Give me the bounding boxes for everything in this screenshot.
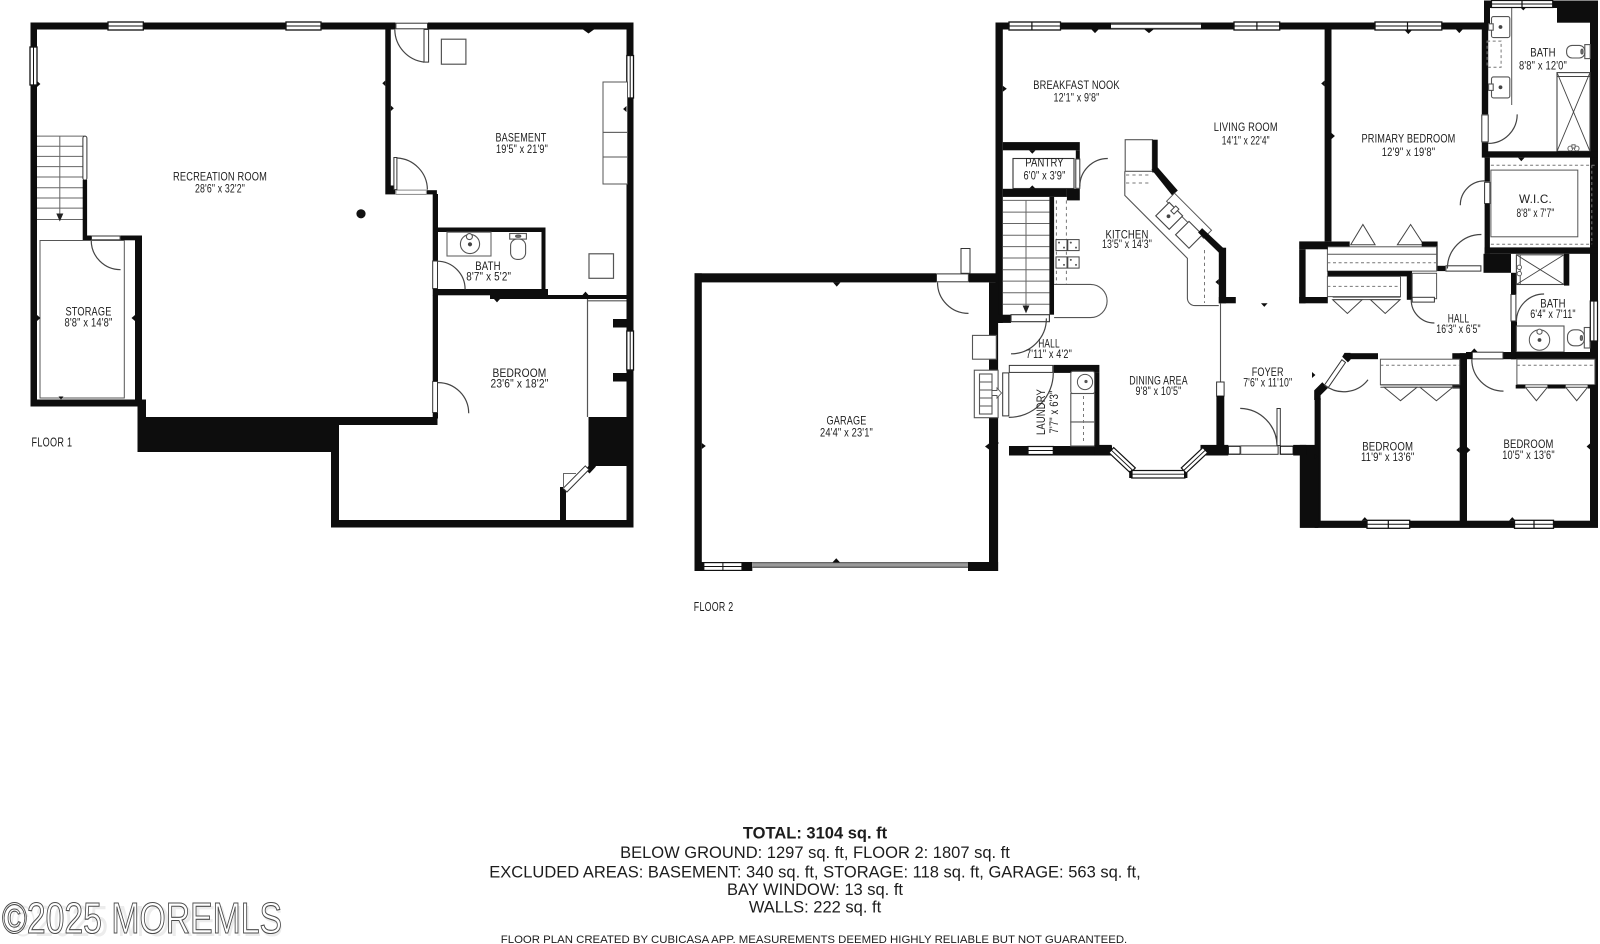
- svg-text:EXCLUDED AREAS: BASEMENT: 340: EXCLUDED AREAS: BASEMENT: 340 sq. ft, ST…: [489, 864, 1140, 882]
- svg-text:FLOOR 2: FLOOR 2: [694, 599, 734, 614]
- svg-text:BELOW GROUND: 1297 sq. ft, FLO: BELOW GROUND: 1297 sq. ft, FLOOR 2: 1807…: [620, 844, 1010, 862]
- svg-text:8'7" x 5'2": 8'7" x 5'2": [466, 270, 511, 283]
- svg-text:FLOOR 1: FLOOR 1: [32, 434, 73, 449]
- svg-text:BATH: BATH: [1530, 47, 1556, 60]
- svg-text:14'1" x 22'4": 14'1" x 22'4": [1222, 135, 1270, 148]
- svg-text:WALLS: 222 sq. ft: WALLS: 222 sq. ft: [749, 899, 882, 917]
- svg-text:7'7" x 6'3": 7'7" x 6'3": [1048, 391, 1061, 434]
- svg-text:6'0" x 3'9": 6'0" x 3'9": [1024, 169, 1066, 182]
- svg-text:LIVING ROOM: LIVING ROOM: [1214, 121, 1278, 134]
- svg-text:LAUNDRY: LAUNDRY: [1035, 389, 1048, 435]
- svg-text:19'5" x 21'9": 19'5" x 21'9": [496, 143, 548, 156]
- svg-text:9'8" x 10'5": 9'8" x 10'5": [1136, 385, 1182, 398]
- svg-text:24'4" x 23'1": 24'4" x 23'1": [820, 426, 873, 439]
- svg-text:BREAKFAST NOOK: BREAKFAST NOOK: [1033, 79, 1120, 92]
- svg-text:12'1" x 9'8": 12'1" x 9'8": [1054, 92, 1100, 105]
- svg-text:FLOOR PLAN CREATED BY CUBICASA: FLOOR PLAN CREATED BY CUBICASA APP. MEAS…: [501, 934, 1127, 944]
- svg-text:11'9" x 13'6": 11'9" x 13'6": [1361, 451, 1415, 464]
- svg-text:7'6" x 11'10": 7'6" x 11'10": [1243, 377, 1292, 390]
- svg-text:W.I.C.: W.I.C.: [1519, 193, 1552, 206]
- svg-text:TOTAL: 3104 sq. ft: TOTAL: 3104 sq. ft: [743, 825, 888, 843]
- svg-text:8'8" x 14'8": 8'8" x 14'8": [65, 317, 113, 330]
- svg-text:12'9" x 19'8": 12'9" x 19'8": [1382, 146, 1436, 159]
- svg-text:©2025 MOREMLS: ©2025 MOREMLS: [2, 894, 282, 943]
- svg-text:8'8" x 7'7": 8'8" x 7'7": [1517, 207, 1555, 220]
- svg-text:PRIMARY BEDROOM: PRIMARY BEDROOM: [1362, 133, 1456, 146]
- svg-text:28'6" x 32'2": 28'6" x 32'2": [195, 183, 245, 196]
- svg-text:23'6" x 18'2": 23'6" x 18'2": [491, 378, 549, 391]
- svg-text:10'5" x 13'6": 10'5" x 13'6": [1502, 449, 1555, 462]
- svg-text:13'5" x 14'3": 13'5" x 14'3": [1102, 238, 1152, 251]
- svg-text:7'11" x 4'2": 7'11" x 4'2": [1026, 348, 1072, 361]
- svg-text:8'8" x 12'0": 8'8" x 12'0": [1519, 60, 1567, 73]
- svg-text:PANTRY: PANTRY: [1025, 156, 1064, 169]
- svg-text:6'4" x 7'11": 6'4" x 7'11": [1530, 308, 1576, 321]
- svg-text:BAY WINDOW: 13 sq. ft: BAY WINDOW: 13 sq. ft: [727, 881, 903, 899]
- svg-text:16'3" x 6'5": 16'3" x 6'5": [1436, 323, 1481, 336]
